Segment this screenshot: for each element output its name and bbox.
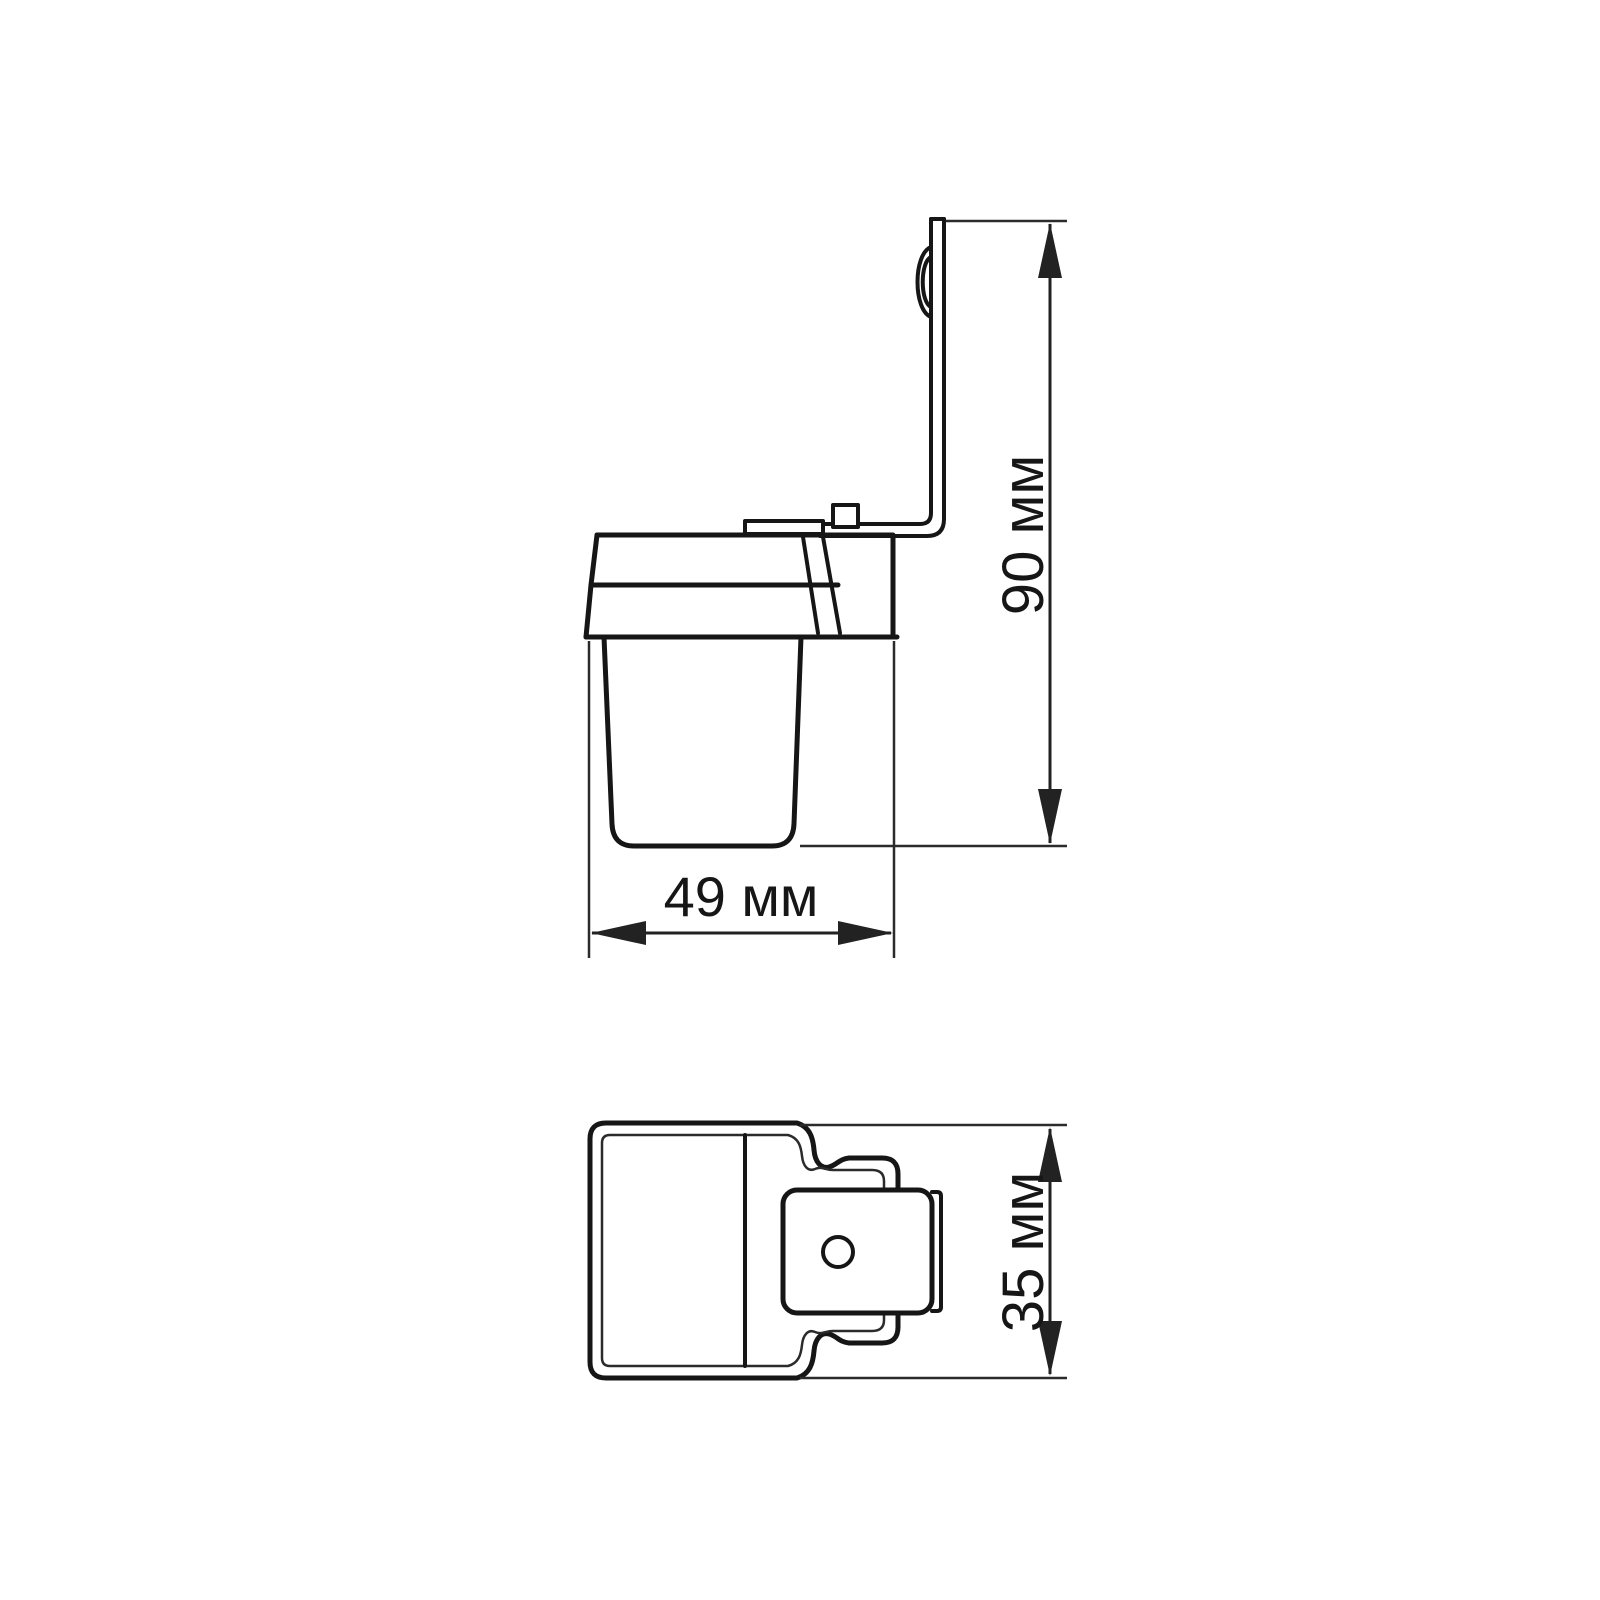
arrowhead-bottom <box>1038 789 1062 844</box>
dimension-label-height: 90 мм <box>991 455 1056 615</box>
top-view: 35 мм <box>590 1123 1067 1378</box>
dimension-label-width: 49 мм <box>664 865 819 928</box>
technical-drawing: 90 мм 49 мм <box>0 0 1600 1600</box>
side-view: 90 мм 49 мм <box>586 219 1067 958</box>
cap-left-edge <box>591 535 597 585</box>
sensor-body <box>586 535 897 846</box>
body-bucket <box>604 637 801 846</box>
arrowhead-left <box>591 921 646 945</box>
square-tab <box>833 505 858 527</box>
dimension-label-depth: 35 мм <box>991 1172 1056 1332</box>
collar-left-edge <box>586 585 591 637</box>
bracket-inner-edge <box>818 219 931 524</box>
arrowhead-top <box>1038 223 1062 278</box>
mounting-bracket <box>818 219 944 536</box>
top-plate <box>745 521 823 534</box>
drawing-canvas: 90 мм 49 мм <box>0 0 1600 1600</box>
bracket-plate <box>783 1190 932 1313</box>
dimension-width: 49 мм <box>589 641 894 958</box>
arrowhead-right <box>838 921 893 945</box>
